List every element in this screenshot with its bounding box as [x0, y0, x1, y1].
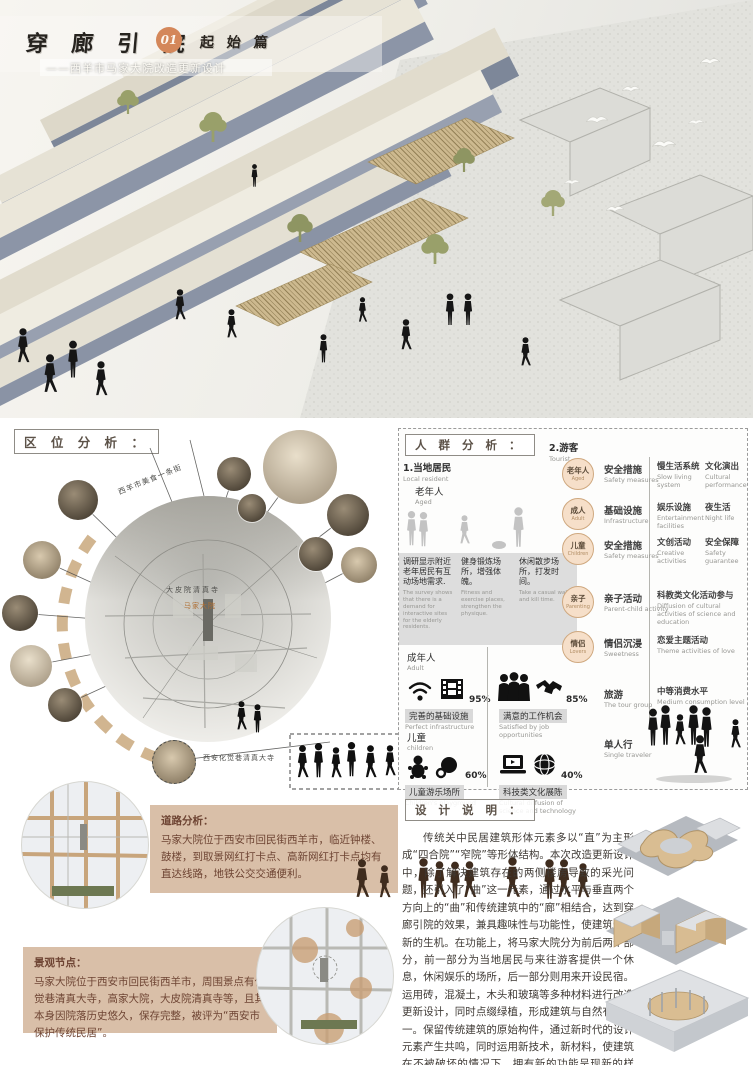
tourist-tag-adult: 成人 Adult: [562, 498, 594, 530]
note-2: 健身锻炼场所，增强体魄。 Fitness and exercise places…: [461, 557, 513, 618]
photo-circle-interior: [327, 494, 369, 536]
note-2-en: Fitness and exercise places, strengthen …: [461, 590, 513, 618]
tourist-group-title: 2.游客: [549, 443, 578, 455]
model-study-courtyard: [598, 958, 753, 1058]
tag-lovers-zh: 情侣: [571, 639, 586, 648]
note-1-en: The survey shows that there is a demand …: [403, 590, 455, 631]
note-1: 调研显示附近老年居民有互动场地需求. The survey shows that…: [403, 557, 455, 631]
photo-circle-pavilion: [2, 595, 38, 631]
activity-3a-zh: 科教类文化活动参与: [657, 591, 745, 602]
need-0-zh: 安全措施: [604, 462, 659, 476]
jobs-label-en: Satisfied by job opportunities: [499, 723, 579, 739]
road-map-circle: [22, 782, 148, 908]
photo-circle-mosque: [10, 645, 52, 687]
model-study-curved: [598, 788, 753, 883]
activity-3a-en: Diffusion of cultural activities of scie…: [657, 602, 745, 626]
activity-0b-en: Cultural performance: [705, 473, 745, 489]
hero-rendering: 穿 廊 引 院 01 起 始 篇 ——西羊市马家大院改造更新设计: [0, 0, 753, 418]
model-study-linear: [598, 873, 753, 968]
activity-2a-zh: 文创活动: [657, 538, 701, 549]
location-people-cluster: [232, 682, 407, 797]
tourist-tag-lovers: 情侣 Lovers: [562, 631, 594, 663]
need-4-en: Sweetness: [604, 650, 642, 658]
activity-0b: 文化演出 Cultural performance: [705, 462, 745, 489]
local-group-title-en: Local resident: [403, 475, 448, 483]
activity-2a-en: Creative activities: [657, 549, 701, 565]
wifi-icon: [407, 677, 433, 703]
photo-circle-temple: [23, 541, 61, 579]
jobs-label: 满意的工作机会: [499, 709, 567, 723]
landscape-map-circle: [257, 908, 393, 1044]
need-row-2: 安全措施 Safety measures: [604, 538, 659, 560]
need-0-en: Safety measures: [604, 476, 659, 484]
photo-circle-lane: [48, 688, 82, 722]
tourist-tag-parenting: 亲子 Parenting: [562, 586, 594, 618]
activity-0a-en: Slow living system: [657, 473, 701, 489]
activity-2b-en: Safety guarantee: [705, 549, 745, 565]
photo-circle-roof: [58, 480, 98, 520]
need-row-4: 情侣沉浸 Sweetness: [604, 636, 642, 658]
photo-circle-gate: [217, 457, 251, 491]
landscape-map-streets: [257, 908, 393, 1044]
handshake-icon: [535, 677, 563, 701]
crowd-icon: [496, 671, 532, 703]
photo-circle-street: [341, 547, 377, 583]
children-label-en: children: [407, 744, 433, 752]
need-2-en: Safety measures: [604, 552, 659, 560]
pacifier-icon: [435, 755, 459, 779]
need-1-zh: 基础设施: [604, 503, 648, 517]
activity-0a-zh: 慢生活系统: [657, 462, 701, 473]
landscape-nodes-title: 景观节点：: [34, 955, 266, 972]
activity-4a-zh: 恋爱主题活动: [657, 636, 745, 647]
divider-local-columns: [487, 647, 488, 787]
map-mosque-label: 大皮院清真寺: [166, 585, 220, 595]
tourist-tag-children: 儿童 Children: [562, 533, 594, 565]
chapter-number-badge: 01: [156, 27, 182, 53]
film-reel-icon: [439, 676, 465, 702]
landscape-nodes-text: 马家大院位于西安市回民街西羊市，周围景点有化觉巷清真大寺，高家大院，大皮院清真寺…: [34, 974, 266, 1042]
tag-children-en: Children: [568, 551, 589, 557]
need-row-0: 安全措施 Safety measures: [604, 462, 659, 484]
activity-1b-en: Night life: [705, 514, 745, 522]
design-description-title: 设 计 说 明 ：: [405, 799, 535, 821]
play-percent: 60%: [465, 771, 487, 781]
local-group-title: 1.当地居民: [403, 463, 451, 475]
need-2-zh: 安全措施: [604, 538, 659, 552]
globe-icon: [532, 752, 557, 777]
road-map-streets: [22, 782, 148, 908]
crowd-analysis-panel: 人 群 分 析 ： 2.游客 Tourist 1.当地居民 Local resi…: [398, 428, 748, 790]
activity-2b-zh: 安全保障: [705, 538, 745, 549]
activity-4a: 恋爱主题活动 Theme activities of love: [657, 636, 745, 655]
photo-circle-alley: [299, 537, 333, 571]
tech-percent: 40%: [561, 771, 583, 781]
need-row-1: 基础设施 Infrastructure: [604, 503, 648, 525]
activity-1b: 夜生活 Night life: [705, 503, 745, 522]
baby-icon: [407, 755, 429, 779]
note-2-zh: 健身锻炼场所，增强体魄。: [461, 557, 513, 587]
tag-adult-en: Adult: [571, 516, 584, 522]
poster-subtitle: ——西羊市马家大院改造更新设计: [46, 60, 226, 76]
tourist-figures: [644, 691, 744, 786]
activity-1a-zh: 娱乐设施: [657, 503, 701, 514]
tag-parenting-zh: 亲子: [571, 594, 586, 603]
crowd-analysis-title: 人 群 分 析 ：: [405, 434, 535, 456]
tag-aged-zh: 老年人: [567, 466, 590, 475]
photo-circle-courtyard: [263, 430, 337, 504]
activity-3a: 科教类文化活动参与 Diffusion of cultural activiti…: [657, 591, 745, 626]
adult-label-en: Adult: [407, 664, 424, 672]
need-1-en: Infrastructure: [604, 517, 648, 525]
note-1-zh: 调研显示附近老年居民有互动场地需求.: [403, 557, 455, 587]
tag-parenting-en: Parenting: [566, 604, 590, 610]
chapter-name: 起 始 篇: [199, 32, 272, 52]
chapter-number: 01: [161, 33, 178, 47]
need-4-zh: 情侣沉浸: [604, 636, 642, 650]
note-3-zh: 休闲散步场所，打发时间。: [519, 557, 571, 587]
jobs-percent: 85%: [566, 695, 588, 705]
tag-children-zh: 儿童: [571, 541, 586, 550]
tag-aged-en: Aged: [572, 476, 585, 482]
tech-label: 科技类文化展陈: [499, 785, 567, 799]
activity-1a-en: Entertainment facilities: [657, 514, 701, 530]
road-analysis-title: 道路分析：: [161, 813, 387, 830]
tourist-tag-aged: 老年人 Aged: [562, 458, 594, 490]
play-label: 儿童游乐场所: [405, 785, 464, 799]
photo-circle-door: [238, 494, 266, 522]
activity-4a-en: Theme activities of love: [657, 647, 745, 655]
activity-2b: 安全保障 Safety guarantee: [705, 538, 745, 565]
laptop-icon: [499, 753, 527, 777]
activity-0a: 慢生活系统 Slow living system: [657, 462, 701, 489]
site-name-label: 马家大院: [184, 601, 216, 611]
infrastructure-label: 完善的基础设施: [405, 709, 473, 723]
activity-2a: 文创活动 Creative activities: [657, 538, 701, 565]
activity-0b-zh: 文化演出: [705, 462, 745, 473]
tag-lovers-en: Lovers: [570, 649, 586, 655]
photo-circle-facade-dashed: [152, 740, 196, 784]
landscape-nodes-box: 景观节点： 马家大院位于西安市回民街西羊市，周围景点有化觉巷清真大寺，高家大院，…: [23, 947, 277, 1033]
activity-1a: 娱乐设施 Entertainment facilities: [657, 503, 701, 530]
infrastructure-label-en: Perfect infrastructure: [405, 723, 485, 731]
poster: 穿 廊 引 院 01 起 始 篇 ——西羊市马家大院改造更新设计 区 位 分 析…: [0, 0, 753, 1065]
tag-adult-zh: 成人: [571, 506, 586, 515]
elderly-figures: [399, 505, 559, 553]
activity-1b-zh: 夜生活: [705, 503, 745, 514]
